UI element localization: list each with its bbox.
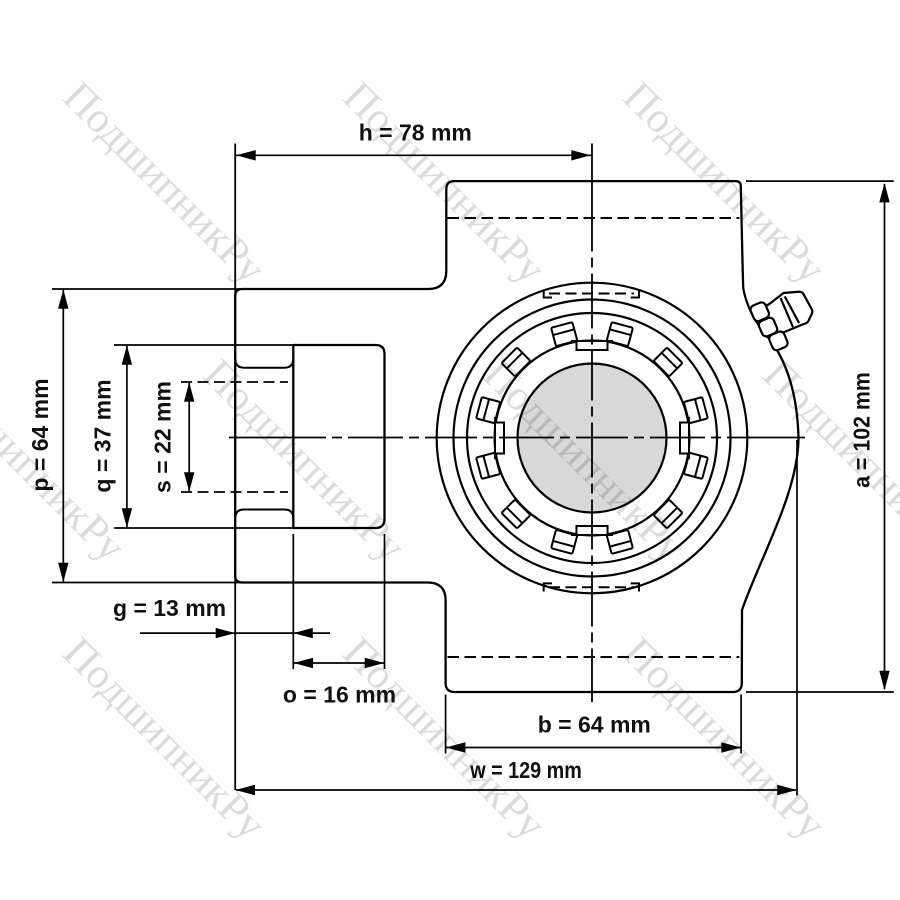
svg-text:b = 64 mm: b = 64 mm — [538, 712, 651, 738]
svg-text:q = 37 mm: q = 37 mm — [89, 379, 115, 492]
svg-text:s = 22 mm: s = 22 mm — [150, 381, 176, 493]
svg-text:g = 13 mm: g = 13 mm — [113, 595, 226, 621]
